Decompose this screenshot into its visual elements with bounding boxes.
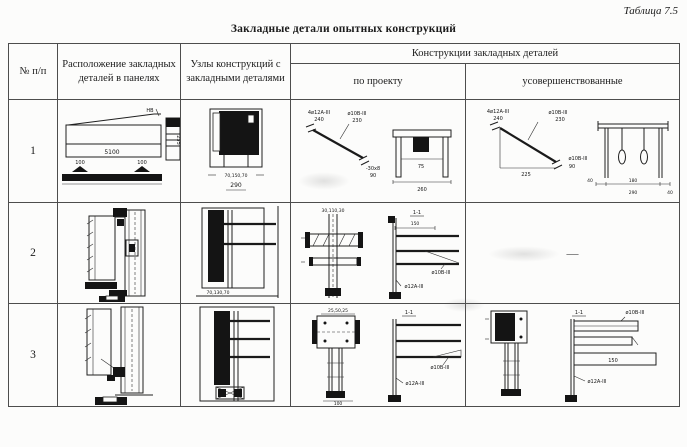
cell-node-2: 70,130,70	[181, 203, 291, 304]
header-location: Расположение закладных деталей в панелях	[58, 44, 181, 100]
dim-label: 30,110,30	[322, 208, 345, 214]
header-num: № п/п	[9, 44, 58, 100]
dim-total-label: 290	[628, 190, 637, 196]
dim-label: 100	[334, 401, 343, 405]
dim-label: 230	[352, 118, 362, 124]
table-row-2: 2	[9, 203, 680, 304]
table-title: Закладные детали опытных конструкций	[0, 23, 687, 35]
rod-label: ø12А-III	[405, 381, 424, 387]
rod-label: ø10В-III	[625, 310, 644, 316]
dim-label: 150	[608, 358, 618, 364]
dim-label: 100	[137, 160, 147, 166]
header-nodes: Узлы конструкций с закладными деталями	[181, 44, 291, 100]
section-label: 1-1	[405, 310, 413, 316]
rod-label: ø10В-III	[347, 111, 366, 117]
drawing-joint-node-2: 70,130,70	[188, 204, 283, 302]
drawing-anchor-project-2: 30,110,30	[293, 204, 463, 302]
cell-location-2	[58, 203, 181, 304]
embedded-details-table: № п/п Расположение закладных деталей в п…	[8, 43, 680, 407]
hatch-ticks	[85, 315, 91, 361]
plate-label: -30х8	[366, 166, 380, 172]
section-label: 1-1	[574, 310, 582, 316]
rod-label: ø10В-III	[430, 365, 449, 371]
plan-view	[485, 311, 527, 396]
hatch-ticks	[87, 220, 93, 272]
dim-label: 240	[493, 116, 503, 122]
rod-label: ø12А-III	[587, 379, 606, 385]
dim-label: 230	[555, 117, 565, 123]
drawing-panel-elevation-1: 5100 100 100 235	[58, 106, 181, 196]
drawing-joint-node-3	[190, 305, 282, 405]
elevation-view: 1-1 ø10В-III ø12А-III	[388, 310, 461, 402]
dim-label: 70,150,70	[224, 173, 247, 179]
height-label: 235	[175, 135, 181, 145]
dim-label: 25,50,25	[328, 308, 348, 314]
dim-total-label: 290	[230, 182, 242, 189]
cell-improved-1: 4ø12А-III 240 ø10В-III 230 225	[466, 100, 680, 203]
rod-label: ø10В-III	[568, 156, 587, 162]
elevation-view: 1-1 150 ø10В-III	[388, 210, 459, 299]
drawing-panel-elevation-3	[73, 305, 165, 405]
cell-node-1: 70,150,70 290	[181, 100, 291, 203]
row-number: 1	[9, 100, 58, 203]
dim-label: 75	[418, 164, 424, 170]
cell-location-1: 5100 100 100 235	[58, 100, 181, 203]
drawing-anchor-project-1: 4ø12А-III 240 ø10В-III 230 -30х8	[293, 104, 463, 198]
drawing-anchor-improved-1: 4ø12А-III 240 ø10В-III 230 225	[470, 104, 676, 198]
base-dim-label: 225	[521, 172, 531, 178]
anchor-label: 4ø12А-III	[486, 109, 508, 115]
cell-improved-2: —	[466, 203, 680, 304]
cell-improved-3: 1-1 ø10В-III 150 ø12А-I	[466, 304, 680, 407]
panel-length-label: 5100	[104, 149, 119, 156]
drawing-joint-node-1: 70,150,70 290	[190, 105, 282, 197]
drawing-panel-elevation-2	[73, 204, 165, 302]
header-row-1: № п/п Расположение закладных деталей в п…	[9, 44, 680, 64]
dim-label: 40	[667, 190, 673, 196]
plan-view	[301, 214, 363, 298]
top-mark-label: НВ	[146, 108, 154, 114]
header-constructions: Конструкции закладных деталей	[291, 44, 680, 64]
dim-label: 150	[411, 221, 420, 227]
cell-project-3: 25,50,25	[291, 304, 466, 407]
dim-label: 260	[417, 187, 427, 193]
dim-label: 180	[628, 178, 637, 184]
row-number: 2	[9, 203, 58, 304]
rod-label: ø12А-III	[404, 284, 423, 290]
anchor-bars	[490, 122, 500, 130]
cell-project-2: 30,110,30	[291, 203, 466, 304]
cell-node-3	[181, 304, 291, 407]
table-row-3: 3	[9, 304, 680, 407]
header-improved: усовершенствованные	[466, 64, 680, 100]
anchor-label: 4ø12А-III	[308, 110, 330, 116]
dim-label: 40	[587, 178, 593, 184]
dim-label: 90	[370, 173, 376, 179]
dim-label: 90	[568, 164, 574, 170]
frame-with-loops	[596, 121, 670, 186]
table-reference-label: Таблица 7.5	[624, 5, 678, 17]
frame-figure	[393, 130, 451, 184]
rod-label: ø10В-III	[431, 270, 450, 276]
section-label: 1-1	[413, 210, 421, 216]
header-by-project: по проекту	[291, 64, 466, 100]
drawing-anchor-project-3: 25,50,25	[293, 305, 463, 405]
row-number: 3	[9, 304, 58, 407]
plan-view	[312, 314, 360, 401]
dim-label: 100	[75, 160, 85, 166]
rod-label: ø10В-III	[548, 110, 567, 116]
elevation-view: 1-1 ø10В-III 150 ø12А-I	[565, 310, 656, 402]
table-row-1: 1 5100 100 100	[9, 100, 680, 203]
cell-project-1: 4ø12А-III 240 ø10В-III 230 -30х8	[291, 100, 466, 203]
drawing-anchor-improved-3: 1-1 ø10В-III 150 ø12А-I	[475, 305, 671, 405]
dim-label: 240	[314, 117, 324, 123]
improved-empty-dash: —	[466, 246, 679, 261]
cell-location-3	[58, 304, 181, 407]
dim-label: 70,130,70	[207, 290, 230, 296]
